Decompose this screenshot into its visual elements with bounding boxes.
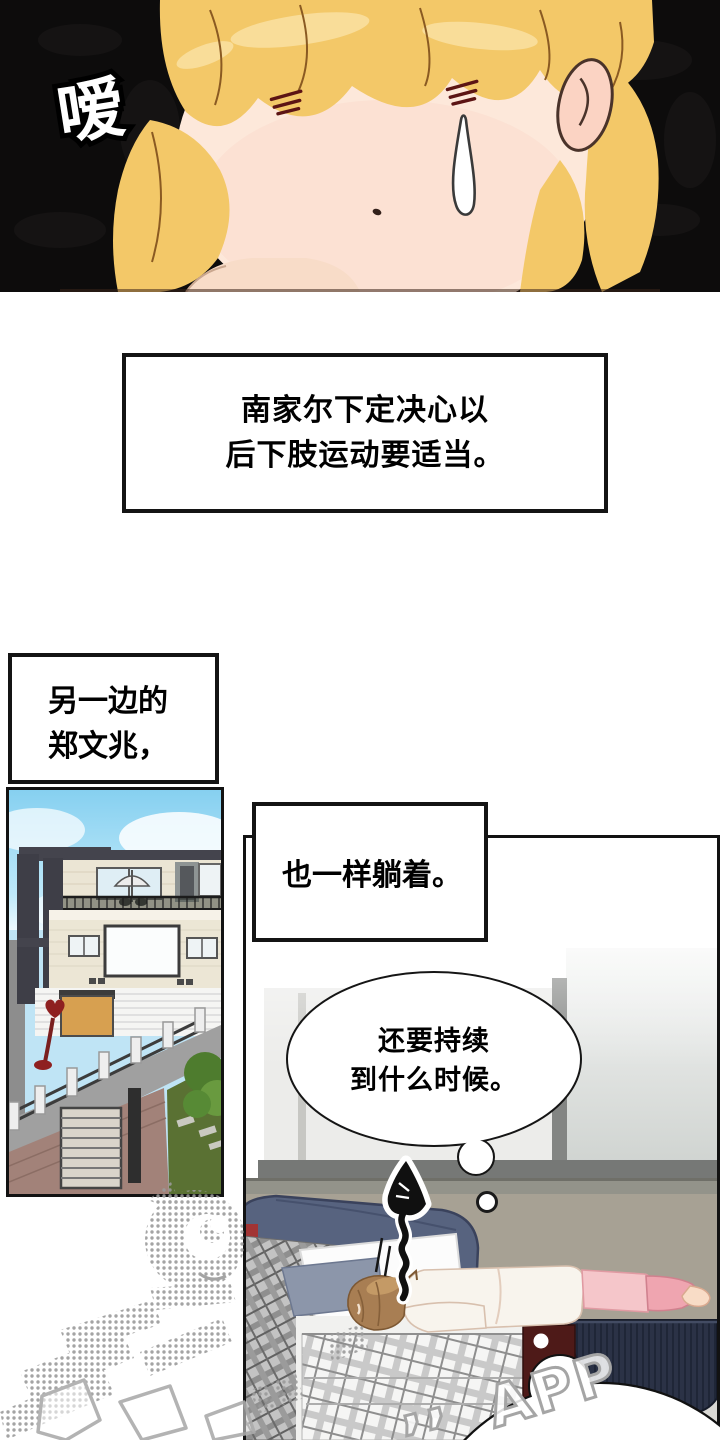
thought-line-1: 还要持续 [378, 1022, 490, 1061]
garage-door [61, 1108, 121, 1188]
narration-box-2: 另一边的 郑文兆， [8, 653, 219, 784]
wood-sign [59, 990, 115, 1036]
sfx-scream: 嗳 嗳 [49, 42, 206, 182]
house-exterior-art [9, 790, 221, 1194]
thought-bubble-text: 还要持续 到什么时候。 [288, 986, 580, 1136]
watermark-glyph-outlines [38, 1380, 254, 1440]
sfx-scream-fill: 嗳 [49, 53, 129, 158]
narration-1-line-1: 南家尔下定决心以 [241, 388, 489, 433]
narration-3-text: 也一样躺着。 [282, 850, 484, 894]
narration-box-1: 南家尔下定决心以 后下肢运动要适当。 [122, 353, 608, 513]
comic-page: 嗳 嗳 [0, 0, 720, 1440]
narration-box-3: 也一样躺着。 [252, 802, 488, 942]
narration-2-line-2: 郑文兆， [48, 724, 215, 769]
shorts [582, 1270, 650, 1312]
arm-sleeve [404, 1302, 486, 1332]
narration-2-line-1: 另一边的 [48, 679, 215, 724]
tree [183, 1052, 221, 1118]
thought-line-2: 到什么时候。 [350, 1061, 518, 1100]
narration-1-line-2: 后下肢运动要适当。 [226, 433, 505, 478]
panel-house-exterior [6, 787, 224, 1197]
